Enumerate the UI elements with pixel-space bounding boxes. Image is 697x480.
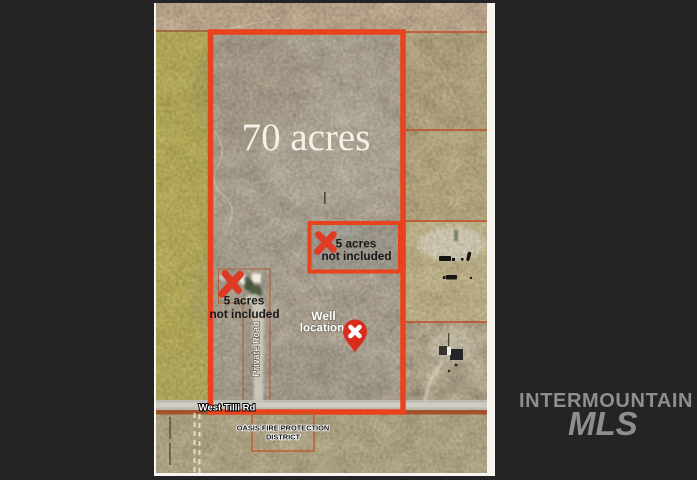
svg-text:70 acres: 70 acres: [242, 116, 371, 159]
svg-text:location: location: [300, 322, 344, 335]
svg-text:DISTRICT: DISTRICT: [266, 433, 301, 442]
svg-text:MLS: MLS: [568, 405, 638, 442]
svg-text:West Tilli Rd: West Tilli Rd: [199, 403, 256, 414]
svg-text:5 acres: 5 acres: [224, 294, 265, 308]
svg-text:OASIS FIRE PROTECTION: OASIS FIRE PROTECTION: [237, 424, 329, 433]
svg-text:Private Road: Private Road: [251, 321, 261, 376]
svg-text:not included: not included: [209, 307, 279, 321]
